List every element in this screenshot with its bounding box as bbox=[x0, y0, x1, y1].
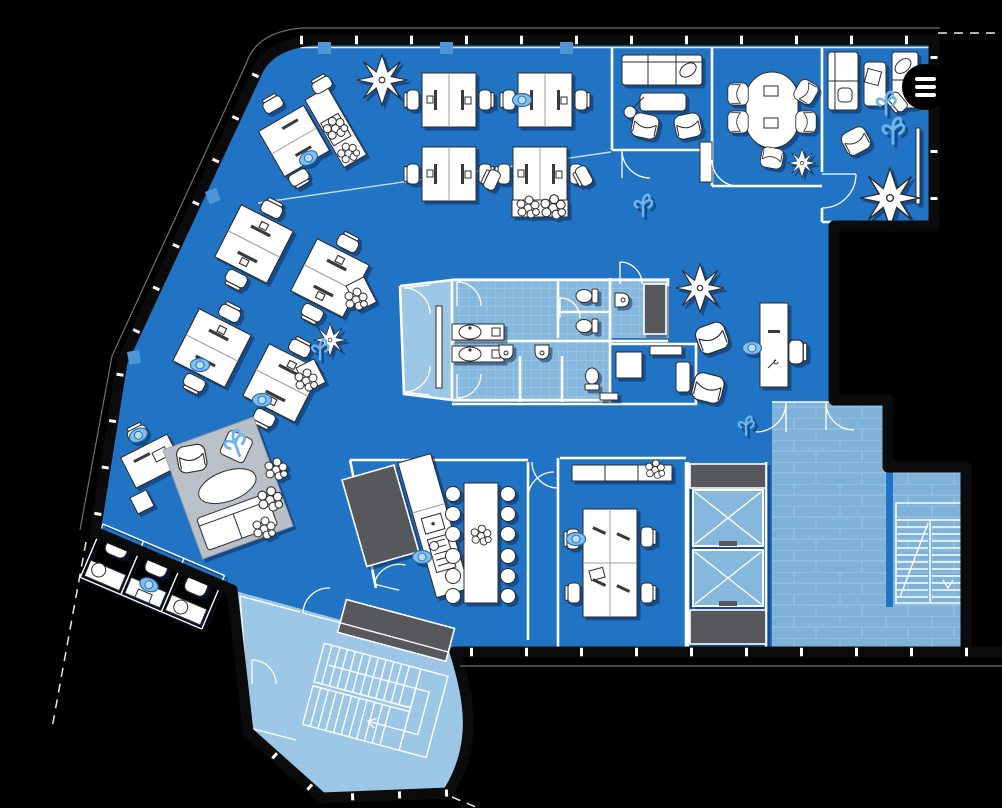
elevator-icon bbox=[693, 490, 763, 546]
bathroom-vestibule-floor bbox=[400, 280, 452, 400]
meeting-table bbox=[746, 72, 798, 148]
zone-terrace bbox=[756, 402, 966, 648]
person bbox=[743, 342, 762, 355]
sink-icon bbox=[459, 347, 481, 361]
person bbox=[191, 359, 210, 372]
chair bbox=[641, 527, 656, 547]
person bbox=[513, 94, 532, 107]
bathroom-lockers bbox=[644, 284, 666, 334]
cushion bbox=[838, 88, 852, 102]
stool bbox=[446, 527, 461, 542]
toilet-icon bbox=[576, 319, 598, 333]
soap-dispenser bbox=[492, 328, 500, 336]
utility-table bbox=[616, 352, 642, 378]
coffee-table bbox=[640, 93, 686, 111]
stool bbox=[501, 527, 516, 542]
elevator-icon bbox=[693, 550, 763, 606]
utility-shelf bbox=[600, 393, 618, 400]
armchair bbox=[673, 112, 703, 141]
plant-star-icon bbox=[860, 168, 919, 227]
person bbox=[567, 533, 586, 546]
sink-icon bbox=[459, 325, 481, 339]
toilet-icon bbox=[576, 289, 598, 303]
terrace-floor bbox=[772, 402, 966, 648]
chair bbox=[728, 111, 748, 133]
chair bbox=[565, 583, 580, 603]
chair bbox=[789, 340, 807, 364]
stool bbox=[446, 507, 461, 522]
dashed-boundary-line bbox=[52, 542, 86, 728]
urinal-icon bbox=[499, 345, 513, 359]
chair bbox=[728, 83, 748, 105]
stool bbox=[501, 549, 516, 564]
stool bbox=[501, 589, 516, 604]
mug bbox=[430, 542, 439, 551]
stool bbox=[446, 589, 461, 604]
menu-button[interactable] bbox=[902, 64, 948, 110]
armchair bbox=[175, 443, 208, 474]
plant-star-icon bbox=[788, 149, 817, 178]
urinal-icon bbox=[615, 293, 629, 307]
cleaning-cart bbox=[676, 362, 690, 392]
stool bbox=[501, 569, 516, 584]
terrace-divider-wall bbox=[886, 467, 893, 607]
standing-desk bbox=[760, 303, 788, 387]
floor-plan-viewer bbox=[0, 0, 1002, 808]
wall-stub bbox=[700, 142, 712, 182]
toilet-icon bbox=[585, 368, 599, 390]
stool bbox=[501, 507, 516, 522]
person bbox=[253, 394, 272, 407]
column bbox=[560, 42, 573, 54]
plant-star-icon bbox=[676, 264, 724, 312]
floor-plan-canvas bbox=[0, 0, 1002, 808]
chair bbox=[759, 146, 784, 170]
utility-shelf bbox=[650, 346, 682, 355]
column bbox=[318, 42, 331, 54]
column bbox=[127, 350, 141, 365]
person bbox=[413, 551, 432, 564]
dashed-boundary-line bbox=[452, 797, 478, 808]
elevator-landing bbox=[690, 464, 766, 488]
chair bbox=[641, 583, 656, 603]
booth-floor bbox=[84, 560, 126, 590]
whiteboard bbox=[916, 128, 920, 204]
elevator-landing bbox=[690, 610, 766, 644]
stool bbox=[501, 487, 516, 502]
armchair bbox=[630, 112, 660, 141]
vestibule-mirror bbox=[436, 306, 442, 388]
urinal-icon bbox=[535, 345, 549, 359]
column bbox=[440, 42, 453, 54]
stool bbox=[446, 487, 461, 502]
chair bbox=[796, 111, 816, 133]
sofa bbox=[622, 55, 702, 85]
zone-elevators bbox=[688, 462, 766, 648]
stool bbox=[446, 569, 461, 584]
magazine bbox=[864, 68, 881, 85]
plant-star-icon bbox=[314, 324, 347, 357]
stool bbox=[446, 549, 461, 564]
plant-star-icon bbox=[357, 55, 408, 106]
